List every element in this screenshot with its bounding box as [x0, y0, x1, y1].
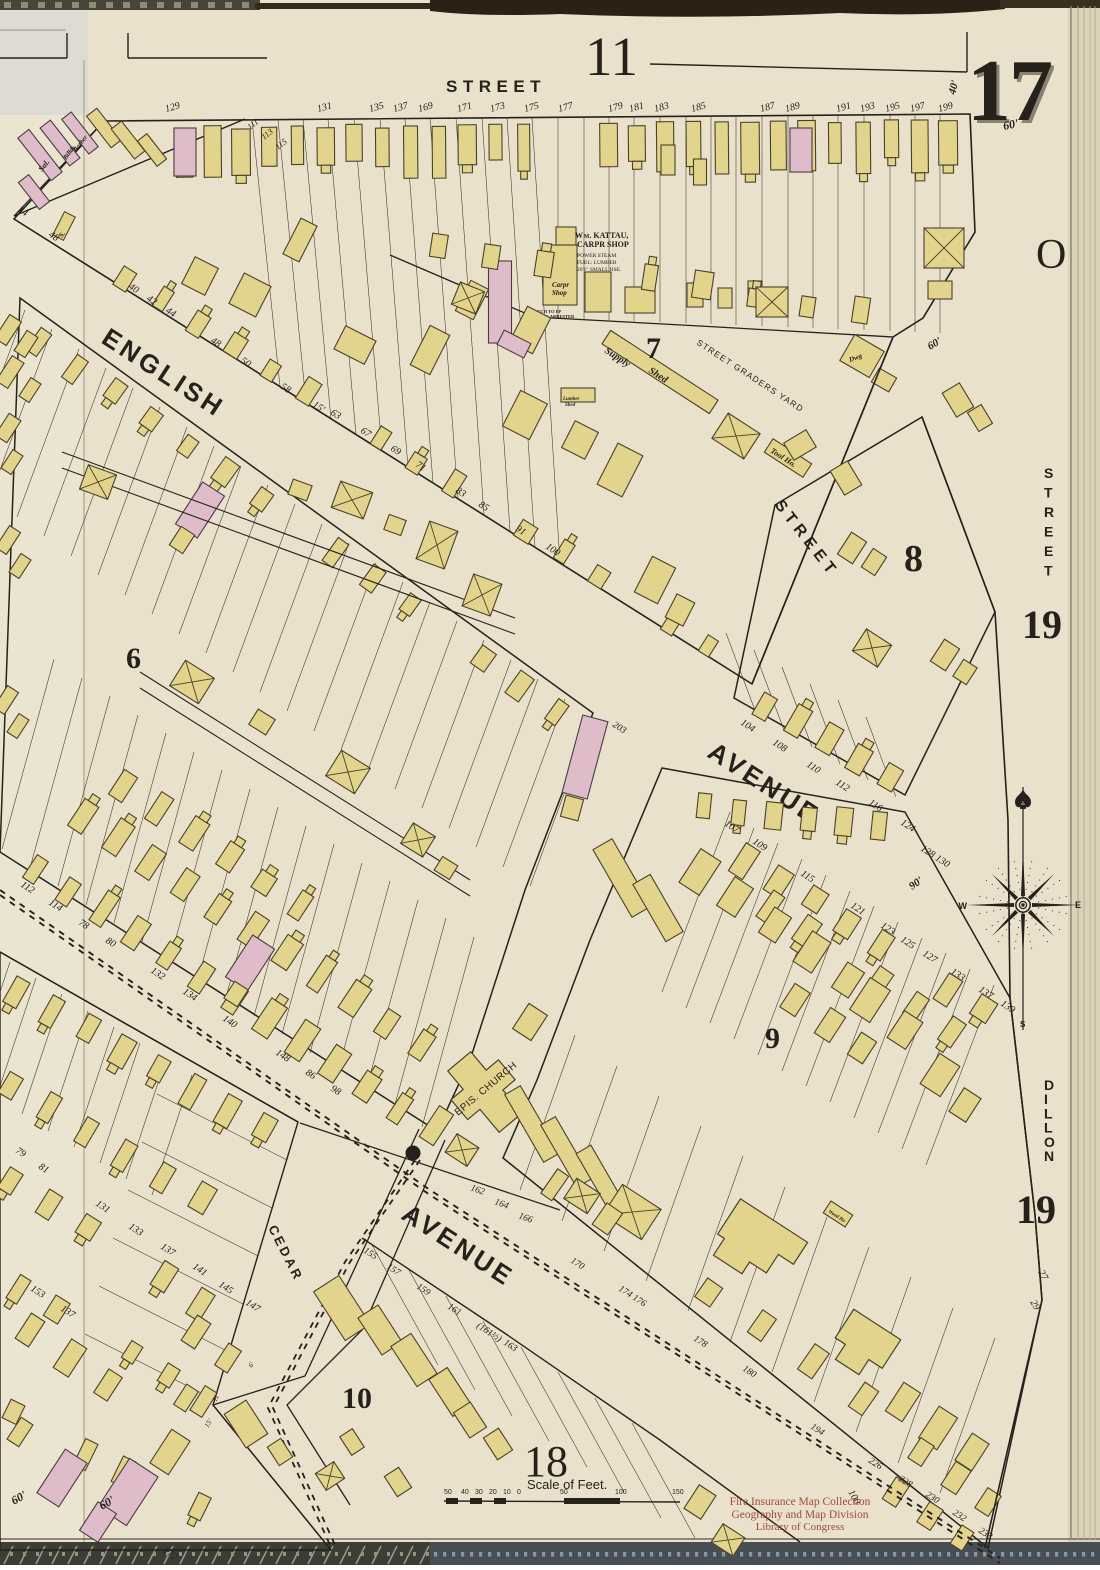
svg-text:Fire Insurance Map Collection: Fire Insurance Map Collection: [730, 1496, 871, 1508]
svg-text:O: O: [1036, 232, 1066, 278]
svg-text:100: 100: [615, 1489, 627, 1496]
svg-text:S: S: [1020, 1020, 1026, 1029]
svg-text:19: 19: [1016, 1187, 1056, 1232]
svg-text:9: 9: [765, 1022, 780, 1055]
svg-text:11: 11: [585, 26, 638, 87]
svg-text:30: 30: [475, 1489, 483, 1496]
svg-text:W M. KATTAU,: W M. KATTAU,: [575, 231, 628, 240]
svg-text:20: 20: [489, 1489, 497, 1496]
svg-text:Geography and Map Division: Geography and Map Division: [731, 1509, 868, 1521]
svg-text:50: 50: [444, 1489, 452, 1496]
svg-text:7: 7: [646, 332, 661, 365]
svg-text:19: 19: [1022, 602, 1062, 647]
svg-text:T: T: [1044, 563, 1053, 579]
svg-text:POWER STEAM: POWER STEAM: [577, 253, 616, 259]
svg-text:Library of Congress: Library of Congress: [756, 1521, 845, 1533]
svg-text:E: E: [1075, 900, 1081, 910]
svg-text:50: 50: [560, 1489, 568, 1496]
svg-text:6: 6: [126, 642, 141, 675]
svg-text:10: 10: [342, 1382, 372, 1415]
svg-text:T: T: [1044, 485, 1053, 501]
svg-text:Lumber: Lumber: [562, 397, 579, 402]
svg-text:E: E: [1044, 524, 1053, 540]
svg-text:40: 40: [461, 1489, 469, 1496]
svg-text:Carpr: Carpr: [552, 281, 569, 289]
svg-text:20'1" SMALL HSE.: 20'1" SMALL HSE.: [577, 267, 622, 273]
svg-text:CARPR SHOP: CARPR SHOP: [577, 240, 629, 249]
svg-text:W: W: [959, 901, 968, 911]
svg-text:Shop: Shop: [552, 289, 567, 297]
svg-text:8: 8: [904, 538, 923, 580]
svg-text:STREET: STREET: [446, 77, 546, 96]
svg-text:E: E: [1044, 543, 1053, 559]
svg-text:Shed: Shed: [565, 403, 576, 408]
svg-text:150: 150: [672, 1489, 684, 1496]
svg-text:10: 10: [503, 1489, 511, 1496]
svg-text:N: N: [1044, 1148, 1054, 1164]
svg-text:R: R: [1044, 504, 1054, 520]
svg-text:FUEL: LUMBER: FUEL: LUMBER: [577, 260, 617, 266]
svg-text:S: S: [1044, 465, 1053, 481]
svg-text:0: 0: [517, 1489, 521, 1496]
